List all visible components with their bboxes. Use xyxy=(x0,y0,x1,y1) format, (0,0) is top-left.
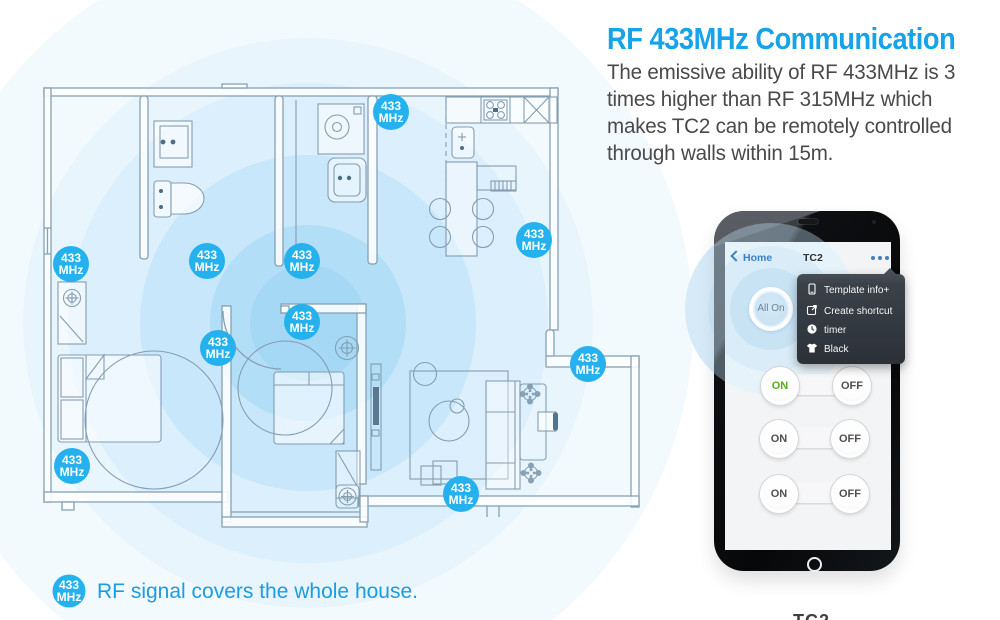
svg-text:MHz: MHz xyxy=(522,239,547,253)
svg-text:MHz: MHz xyxy=(59,263,84,277)
svg-text:MHz: MHz xyxy=(60,465,85,479)
svg-text:MHz: MHz xyxy=(290,260,315,274)
svg-text:MHz: MHz xyxy=(206,347,231,361)
svg-text:MHz: MHz xyxy=(57,590,82,604)
svg-text:MHz: MHz xyxy=(379,111,404,125)
svg-text:MHz: MHz xyxy=(290,321,315,335)
svg-text:MHz: MHz xyxy=(449,493,474,507)
svg-text:MHz: MHz xyxy=(576,363,601,377)
svg-text:MHz: MHz xyxy=(195,260,220,274)
